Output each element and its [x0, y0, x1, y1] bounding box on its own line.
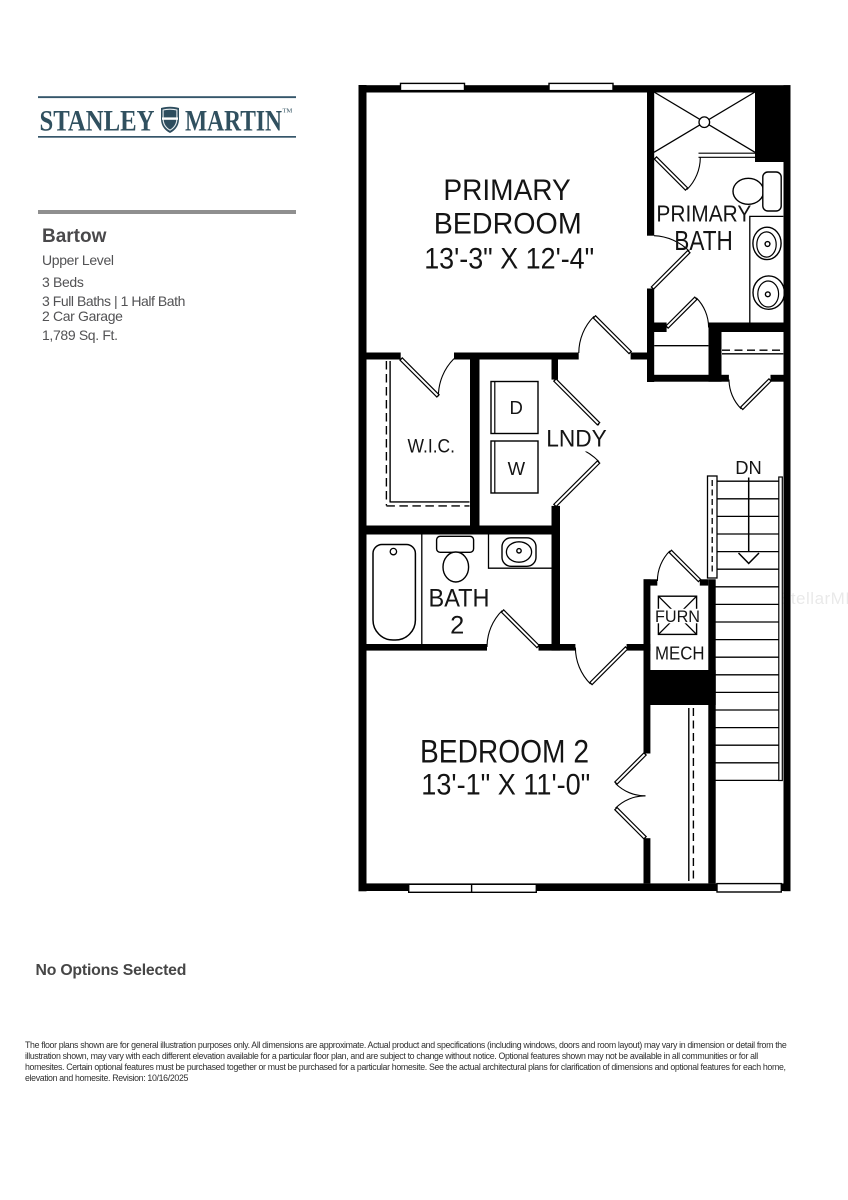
- svg-text:BEDROOM 2: BEDROOM 2: [420, 733, 589, 769]
- svg-text:2: 2: [450, 612, 464, 640]
- svg-text:BATH: BATH: [674, 225, 733, 256]
- svg-text:DN: DN: [735, 457, 762, 478]
- svg-text:MECH: MECH: [655, 644, 705, 664]
- svg-text:FURN: FURN: [655, 607, 700, 626]
- svg-text:D: D: [510, 397, 523, 418]
- svg-text:W: W: [508, 458, 526, 479]
- svg-text:W.I.C.: W.I.C.: [408, 436, 456, 457]
- svg-text:BATH: BATH: [429, 585, 490, 613]
- svg-text:PRIMARY: PRIMARY: [656, 201, 751, 227]
- svg-text:LNDY: LNDY: [546, 426, 607, 453]
- svg-text:PRIMARY: PRIMARY: [443, 174, 570, 207]
- svg-text:13'-3" X 12'-4": 13'-3" X 12'-4": [424, 243, 594, 276]
- svg-text:BEDROOM: BEDROOM: [434, 208, 582, 241]
- svg-text:13'-1" X 11'-0": 13'-1" X 11'-0": [421, 769, 590, 802]
